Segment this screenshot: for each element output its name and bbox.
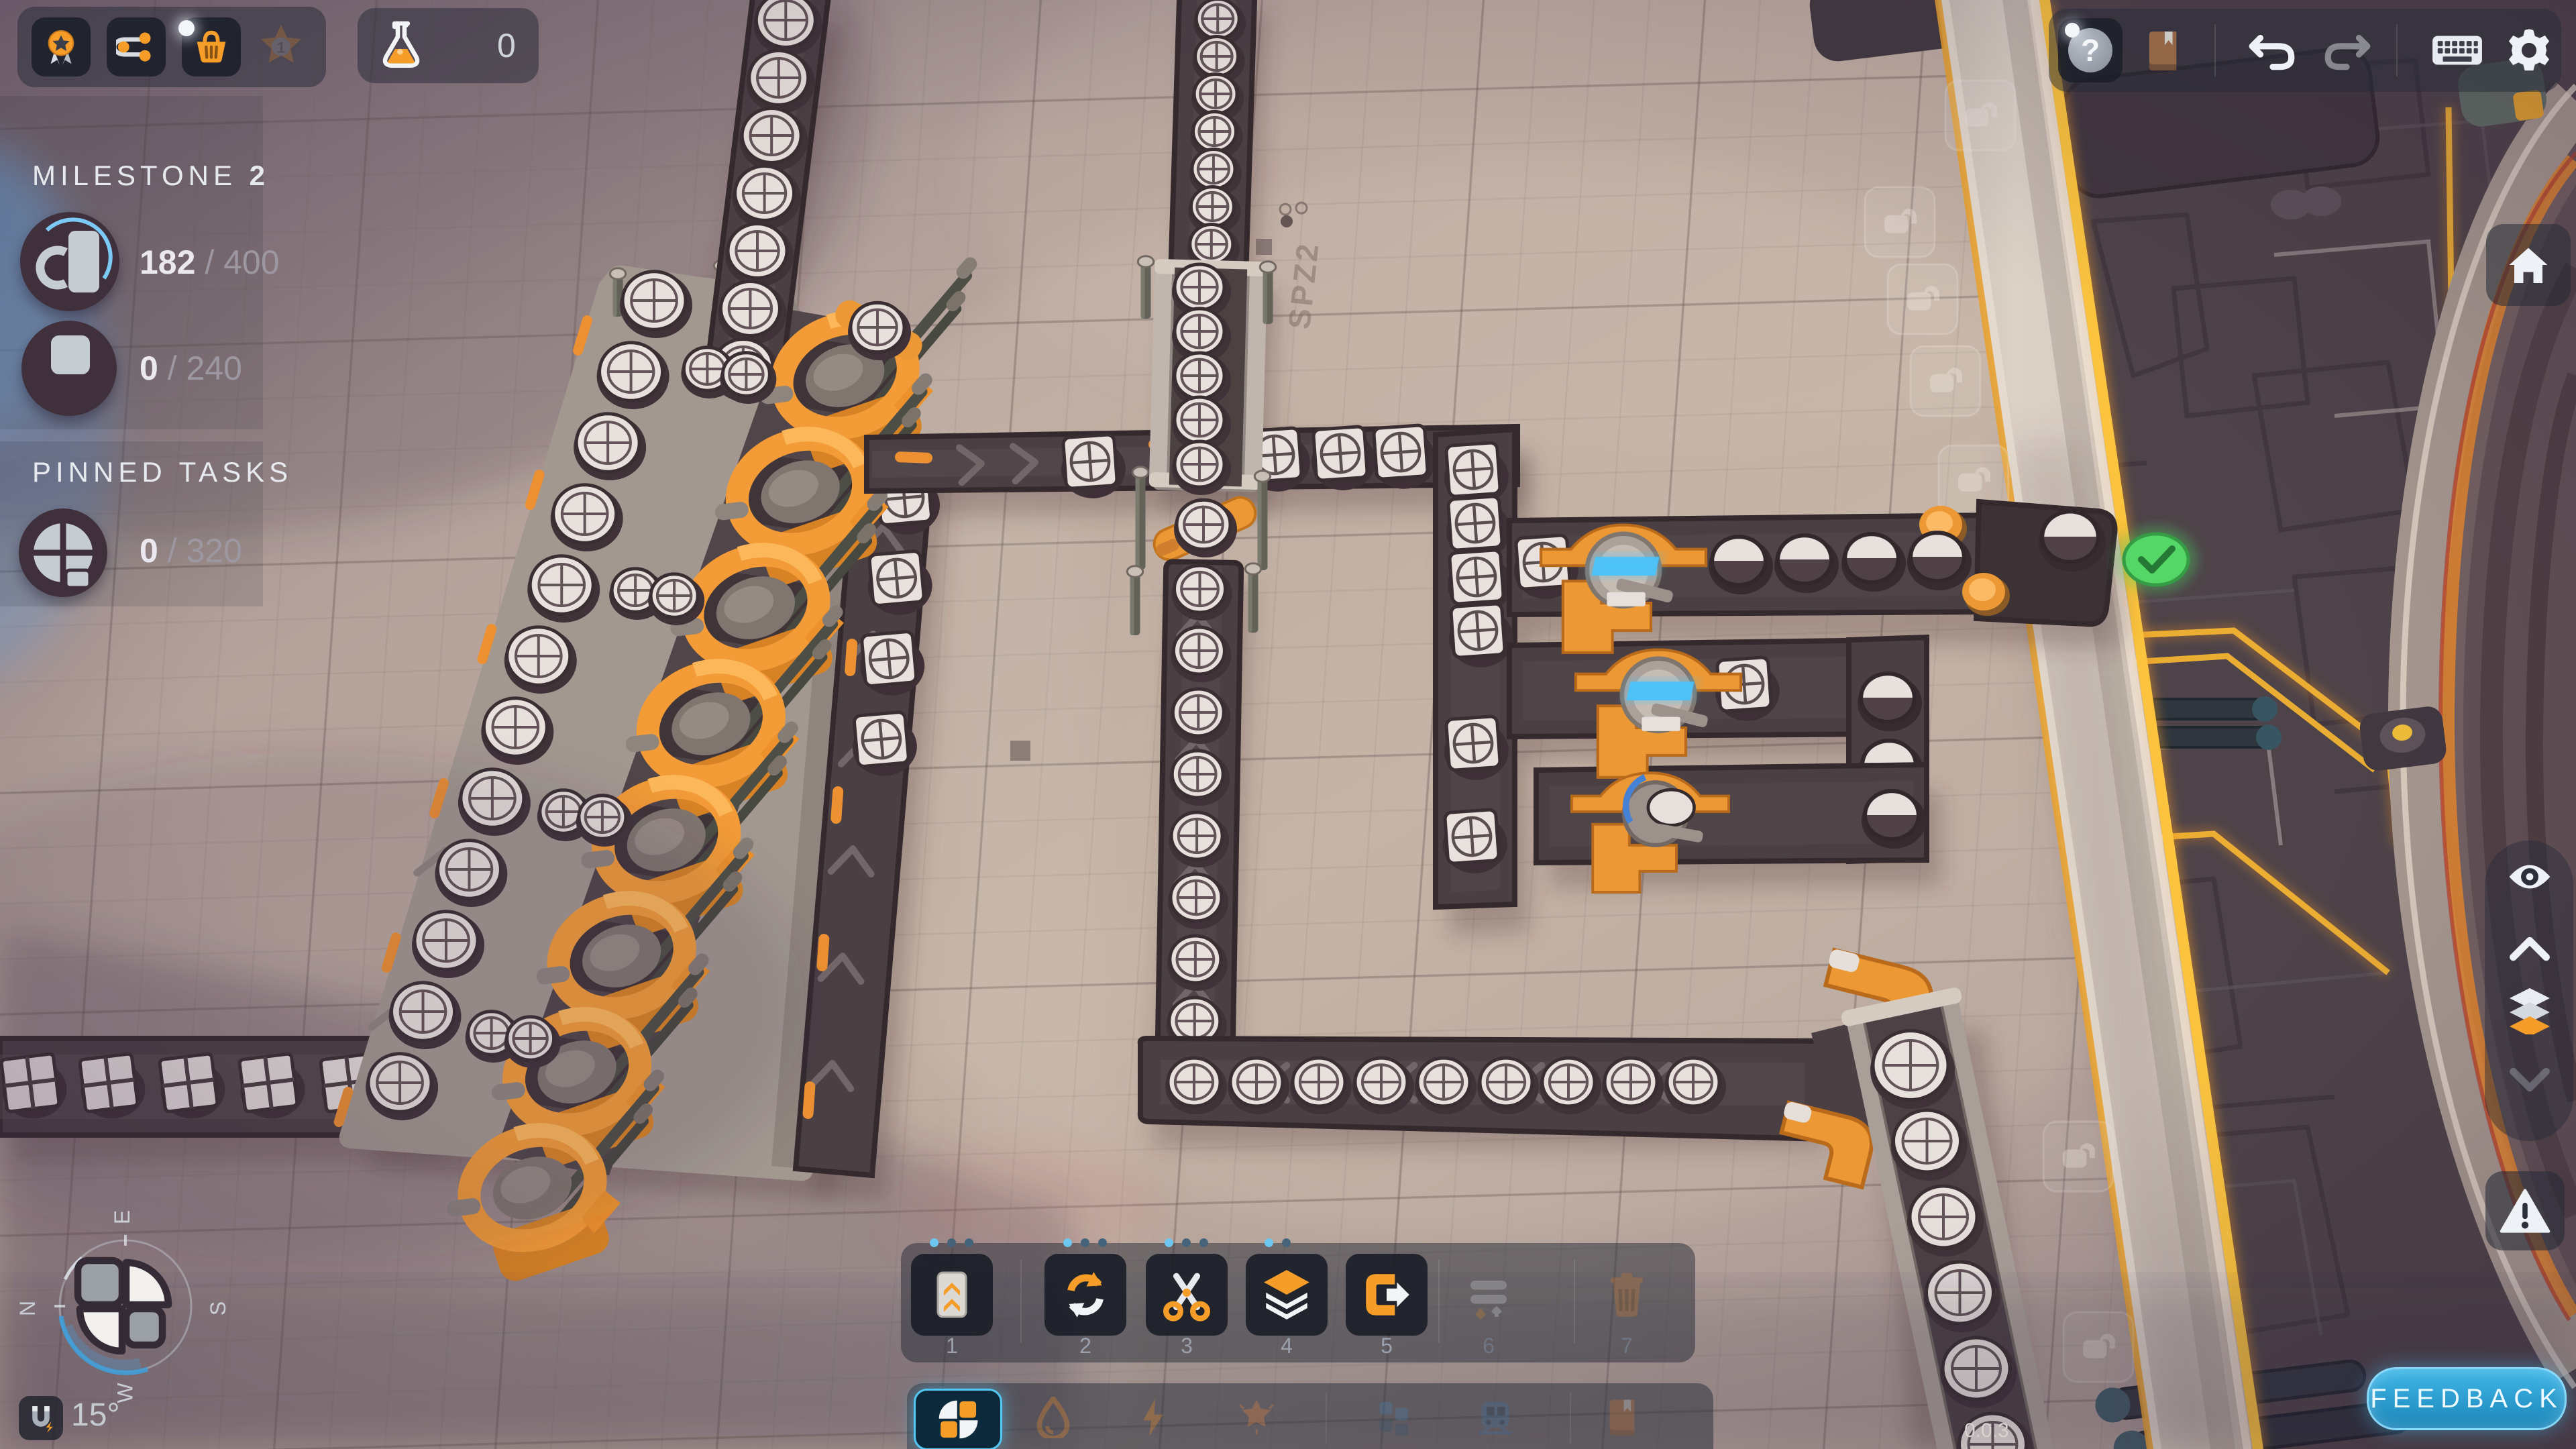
svg-text:1: 1 (277, 39, 286, 56)
